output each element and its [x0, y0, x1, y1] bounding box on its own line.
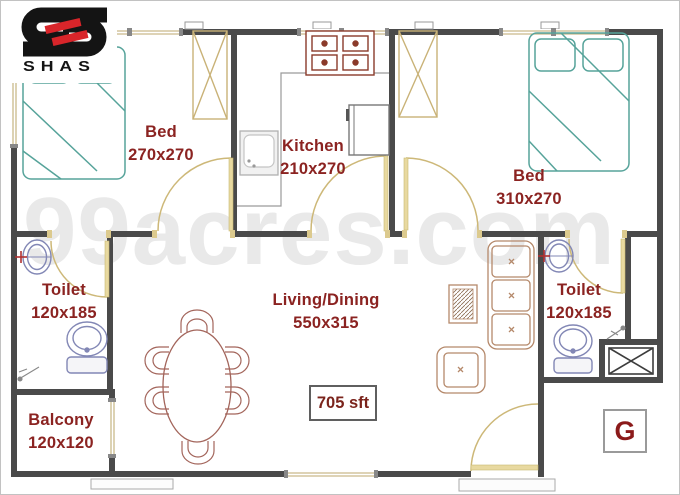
room-dims: 270x270	[101, 144, 221, 167]
brand-logo: SHAS	[9, 3, 117, 83]
dining-chair-icon	[145, 347, 169, 374]
room-label-balcony: Balcony 120x120	[1, 409, 121, 455]
room-name: Toilet	[519, 279, 639, 302]
door-swing-arc	[406, 158, 478, 230]
wardrobe-icon	[399, 31, 437, 117]
floor-marker-letter: G	[614, 416, 635, 447]
armchair-icon	[437, 347, 485, 393]
stove-icon	[306, 31, 374, 75]
dining-chairs	[145, 310, 249, 464]
dining-chair-icon	[225, 392, 241, 409]
room-dims: 120x185	[519, 302, 639, 325]
room-name: Bed	[469, 165, 589, 188]
room-label-living-dining: Living/Dining 550x315	[246, 289, 406, 335]
side-table-icon	[449, 285, 477, 323]
shower-head-icon	[607, 326, 625, 339]
bed-icon	[529, 33, 629, 171]
wc-icon	[554, 325, 592, 373]
room-label-toilet-right: Toilet 120x185	[519, 279, 639, 325]
entry-steps	[91, 479, 555, 491]
dining-table-icon	[163, 330, 231, 442]
dining-chair-icon	[225, 347, 249, 374]
room-name: Kitchen	[253, 135, 373, 158]
room-label-bed1: Bed 270x270	[101, 121, 221, 167]
total-area-label: 705 sft	[309, 385, 377, 421]
door-swing-arc	[471, 404, 538, 471]
total-area-value: 705 sft	[317, 394, 369, 413]
washbasin-icon	[15, 240, 51, 274]
room-dims: 550x315	[246, 312, 406, 335]
room-dims: 210x270	[253, 158, 373, 181]
dining-chair-icon	[145, 387, 169, 414]
room-label-toilet-left: Toilet 120x185	[4, 279, 124, 325]
wardrobe-icon	[193, 31, 227, 119]
room-dims: 120x120	[1, 432, 121, 455]
room-name: Toilet	[4, 279, 124, 302]
shower-head-icon	[18, 367, 39, 381]
shas-logo-icon	[19, 7, 111, 57]
column-tabs	[185, 22, 559, 29]
room-name: Balcony	[1, 409, 121, 432]
dining-chair-icon	[153, 392, 169, 409]
room-dims: 310x270	[469, 188, 589, 211]
dining-chair-icon	[182, 441, 214, 464]
dining-chair-icon	[188, 441, 208, 457]
room-label-kitchen: Kitchen 210x270	[253, 135, 373, 181]
wc-icon	[67, 322, 107, 373]
brand-name: SHAS	[23, 58, 134, 75]
floor-plan: 99acres.com	[0, 0, 680, 495]
dining-chair-icon	[225, 387, 249, 414]
room-label-bed2: Bed 310x270	[469, 165, 589, 211]
room-dims: 120x185	[4, 302, 124, 325]
floor-marker: G	[603, 409, 647, 453]
room-name: Living/Dining	[246, 289, 406, 312]
door-swing-arc	[158, 158, 231, 231]
room-name: Bed	[101, 121, 221, 144]
utility-shaft-icon	[609, 348, 653, 374]
